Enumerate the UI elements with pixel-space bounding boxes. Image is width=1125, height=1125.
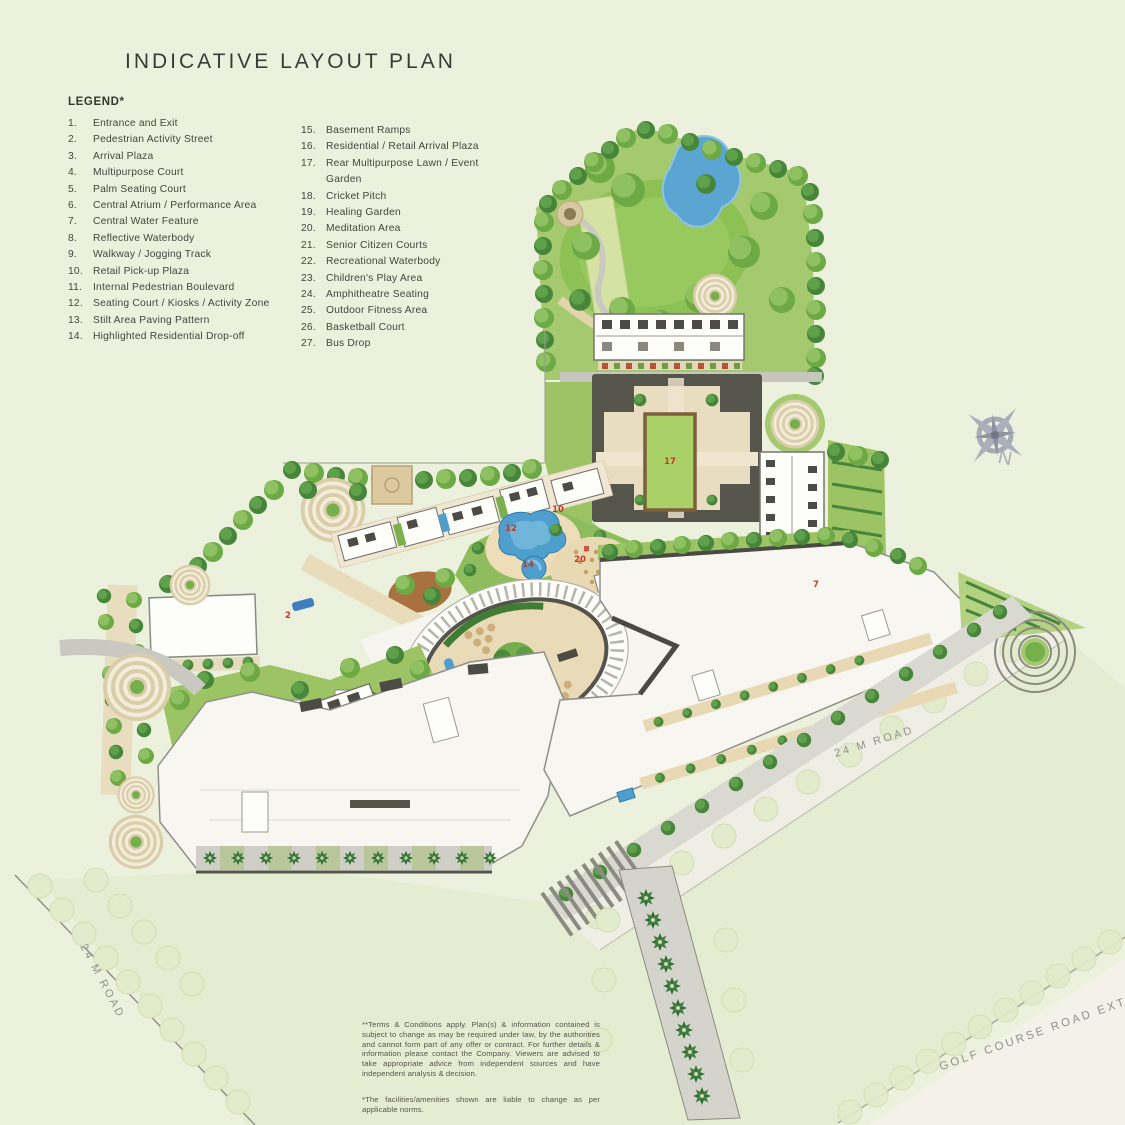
spiral-garden-1 bbox=[693, 274, 737, 318]
central-lawn-17 bbox=[645, 414, 695, 510]
spiral-garden-6 bbox=[109, 815, 163, 869]
spiral-garden-3 bbox=[170, 565, 211, 606]
retail-block-north bbox=[149, 594, 257, 658]
spiral-garden-5 bbox=[117, 776, 154, 813]
spiral-garden-2 bbox=[771, 400, 820, 449]
spiral-garden-4 bbox=[103, 653, 171, 721]
residential-building-north bbox=[594, 314, 744, 370]
multipurpose-court bbox=[372, 466, 412, 504]
central-residential-court bbox=[592, 374, 762, 522]
layout-plan-page: INDICATIVE LAYOUT PLAN LEGEND* 1. Entran… bbox=[0, 0, 1125, 1125]
mall-landscape-strip bbox=[196, 846, 500, 872]
site-plan-illustration bbox=[0, 0, 1125, 1125]
